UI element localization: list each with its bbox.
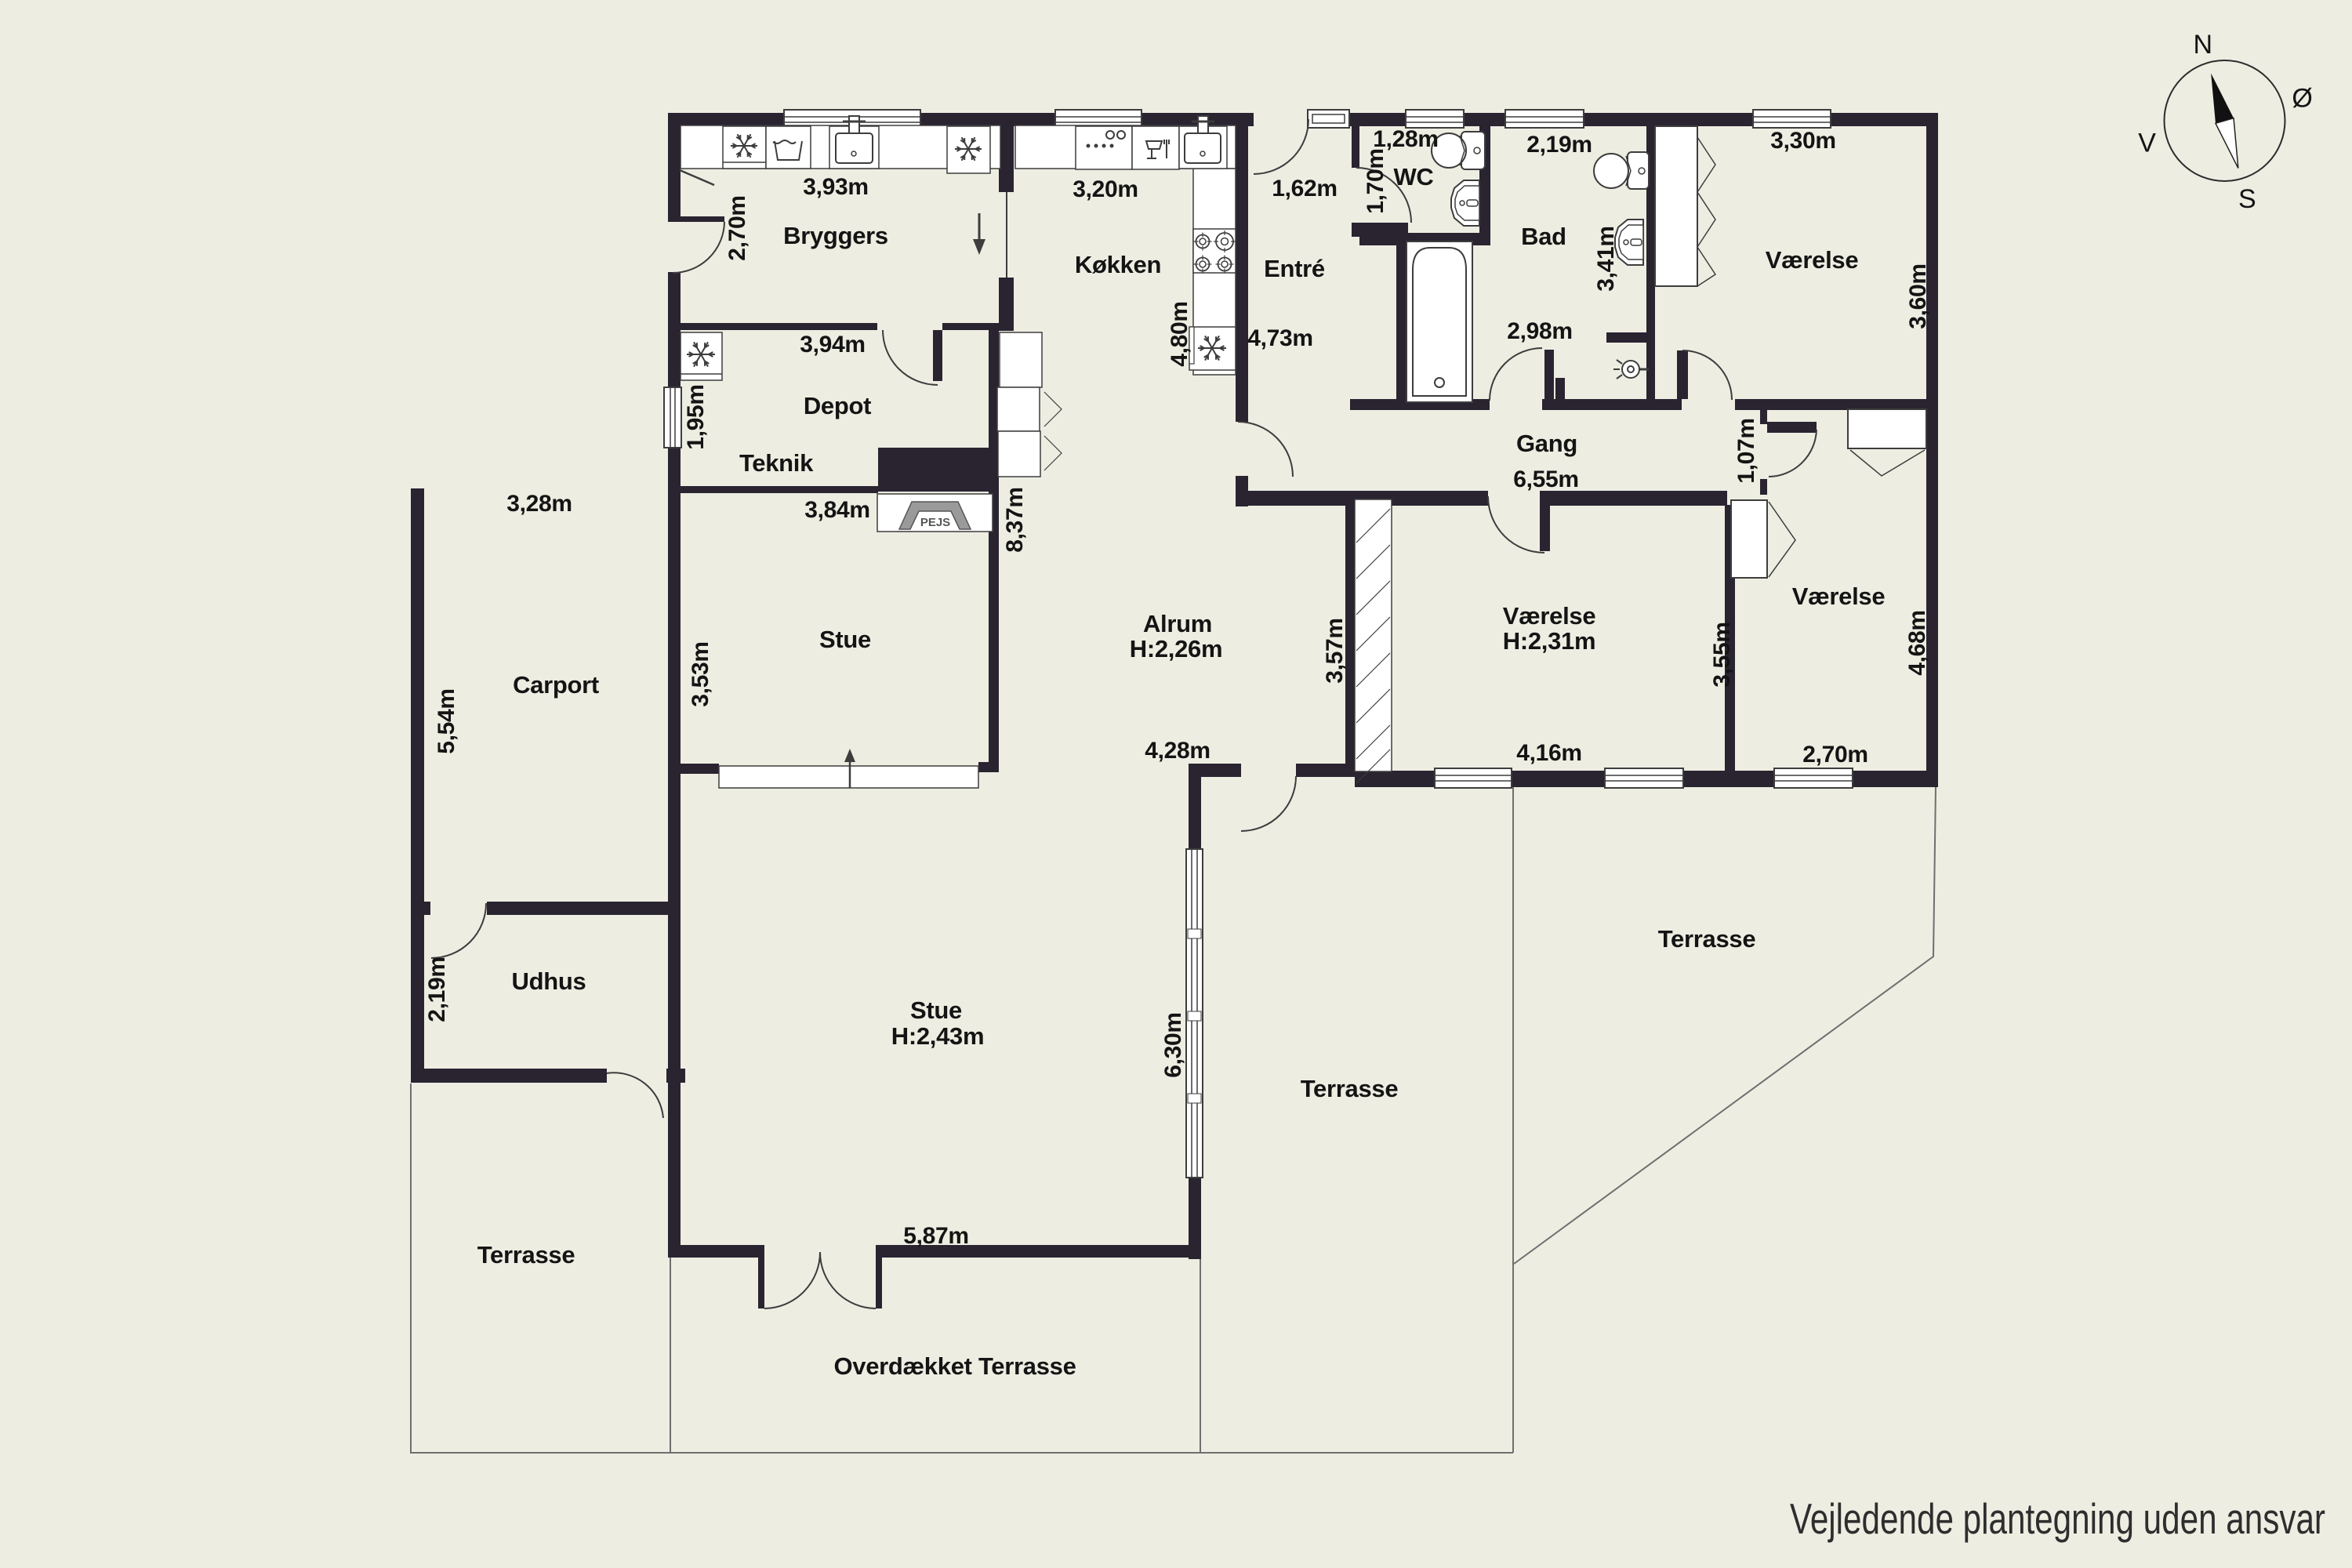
- svg-text:3,84m: 3,84m: [804, 497, 870, 523]
- svg-text:5,87m: 5,87m: [903, 1223, 969, 1249]
- svg-text:6,55m: 6,55m: [1513, 466, 1579, 492]
- svg-text:H:2,43m: H:2,43m: [891, 1022, 985, 1050]
- svg-text:Værelse: Værelse: [1503, 602, 1596, 630]
- svg-text:H:2,26m: H:2,26m: [1130, 635, 1223, 662]
- svg-text:Alrum: Alrum: [1143, 610, 1212, 637]
- svg-text:Bryggers: Bryggers: [783, 222, 888, 249]
- svg-text:Terrasse: Terrasse: [1658, 925, 1756, 953]
- svg-text:Stue: Stue: [819, 626, 871, 653]
- svg-text:Terrasse: Terrasse: [1301, 1075, 1399, 1102]
- svg-text:2,19m: 2,19m: [424, 956, 450, 1022]
- svg-text:3,93m: 3,93m: [803, 174, 869, 200]
- svg-text:3,53m: 3,53m: [688, 641, 713, 707]
- svg-text:S: S: [2238, 184, 2256, 214]
- svg-text:Køkken: Køkken: [1075, 251, 1161, 278]
- svg-text:4,28m: 4,28m: [1145, 738, 1210, 764]
- svg-text:Udhus: Udhus: [512, 967, 586, 995]
- svg-text:N: N: [2194, 30, 2212, 60]
- svg-text:3,60m: 3,60m: [1905, 263, 1931, 329]
- svg-text:1,70m: 1,70m: [1363, 148, 1388, 214]
- svg-text:3,28m: 3,28m: [506, 491, 572, 517]
- svg-text:PEJS: PEJS: [920, 516, 950, 529]
- svg-text:3,20m: 3,20m: [1073, 176, 1138, 202]
- svg-text:4,80m: 4,80m: [1167, 301, 1192, 367]
- svg-text:V: V: [2138, 128, 2156, 158]
- svg-text:5,54m: 5,54m: [434, 688, 459, 754]
- svg-text:8,37m: 8,37m: [1002, 487, 1028, 553]
- svg-text:1,95m: 1,95m: [683, 384, 709, 450]
- svg-text:3,57m: 3,57m: [1322, 618, 1348, 684]
- svg-text:3,55m: 3,55m: [1709, 622, 1735, 688]
- svg-text:2,70m: 2,70m: [724, 195, 750, 261]
- svg-text:Depot: Depot: [804, 392, 871, 419]
- svg-text:2,19m: 2,19m: [1526, 132, 1592, 158]
- svg-text:Entré: Entré: [1264, 255, 1325, 282]
- svg-text:2,70m: 2,70m: [1802, 742, 1868, 768]
- svg-text:Gang: Gang: [1516, 430, 1577, 457]
- svg-text:H:2,31m: H:2,31m: [1503, 627, 1596, 655]
- svg-text:Carport: Carport: [513, 671, 599, 699]
- svg-text:Bad: Bad: [1521, 223, 1566, 250]
- svg-text:Vejledende plantegning uden an: Vejledende plantegning uden ansvar: [1790, 1494, 2325, 1543]
- svg-text:4,68m: 4,68m: [1904, 610, 1930, 676]
- svg-text:2,98m: 2,98m: [1507, 318, 1573, 344]
- svg-text:1,07m: 1,07m: [1733, 418, 1759, 484]
- svg-text:4,73m: 4,73m: [1247, 325, 1313, 351]
- svg-text:Teknik: Teknik: [739, 449, 814, 477]
- svg-text:3,94m: 3,94m: [800, 332, 866, 358]
- svg-text:Værelse: Værelse: [1792, 583, 1886, 610]
- svg-text:Værelse: Værelse: [1766, 246, 1859, 274]
- svg-text:6,30m: 6,30m: [1160, 1012, 1186, 1078]
- svg-text:Stue: Stue: [910, 996, 962, 1024]
- svg-text:3,30m: 3,30m: [1770, 128, 1836, 154]
- svg-text:3,41m: 3,41m: [1593, 226, 1619, 292]
- svg-text:4,16m: 4,16m: [1516, 740, 1582, 766]
- svg-text:Ø: Ø: [2292, 84, 2312, 114]
- svg-text:1,62m: 1,62m: [1272, 176, 1338, 201]
- svg-text:Overdækket Terrasse: Overdækket Terrasse: [833, 1352, 1076, 1380]
- svg-text:Terrasse: Terrasse: [477, 1241, 575, 1269]
- svg-text:WC: WC: [1393, 163, 1433, 191]
- svg-text:1,28m: 1,28m: [1373, 126, 1439, 152]
